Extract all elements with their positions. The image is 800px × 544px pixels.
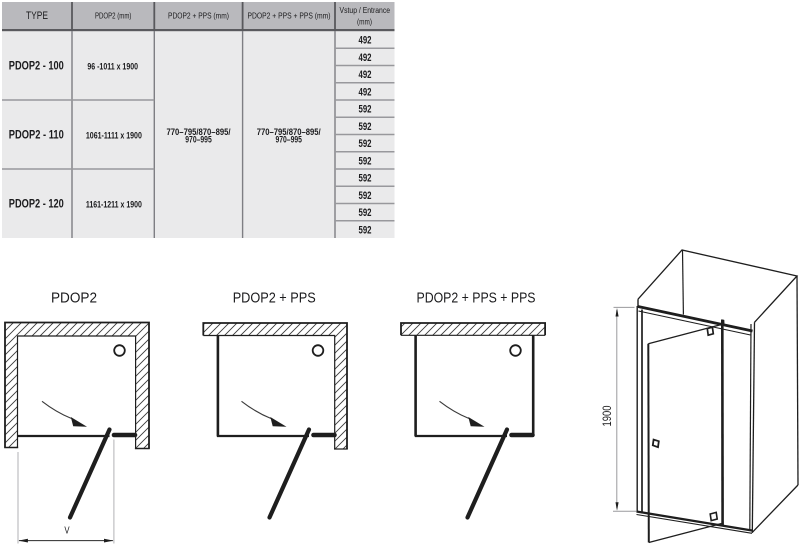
svg-text:PDOP2: PDOP2 — [51, 290, 97, 307]
svg-text:592: 592 — [359, 104, 372, 116]
svg-text:492: 492 — [359, 35, 372, 47]
svg-text:592: 592 — [359, 155, 372, 167]
svg-text:492: 492 — [359, 52, 372, 64]
svg-text:1900: 1900 — [602, 406, 614, 427]
svg-text:592: 592 — [359, 173, 372, 185]
svg-text:1061-1111 x 1900: 1061-1111 x 1900 — [86, 131, 142, 142]
svg-text:PDOP2 + PPS (mm): PDOP2 + PPS (mm) — [168, 10, 229, 20]
svg-text:492: 492 — [359, 86, 372, 98]
svg-text:PDOP2 (mm): PDOP2 (mm) — [95, 10, 132, 20]
svg-text:970–995: 970–995 — [185, 135, 212, 146]
svg-text:V: V — [64, 524, 69, 536]
svg-text:592: 592 — [359, 207, 372, 219]
svg-text:PDOP2 + PPS + PPS: PDOP2 + PPS + PPS — [417, 290, 536, 307]
svg-text:1161-1211 x 1900: 1161-1211 x 1900 — [86, 200, 142, 211]
svg-text:592: 592 — [359, 224, 372, 236]
svg-text:PDOP2 + PPS + PPS (mm): PDOP2 + PPS + PPS (mm) — [248, 10, 331, 20]
svg-text:970–995: 970–995 — [275, 135, 302, 146]
svg-text:PDOP2 - 110: PDOP2 - 110 — [9, 128, 64, 142]
svg-text:PDOP2 - 120: PDOP2 - 120 — [9, 197, 64, 211]
svg-text:492: 492 — [359, 69, 372, 81]
svg-text:96 -1011 x 1900: 96 -1011 x 1900 — [87, 61, 138, 72]
svg-text:PDOP2 + PPS: PDOP2 + PPS — [233, 290, 316, 307]
svg-text:TYPE: TYPE — [26, 10, 48, 22]
svg-text:PDOP2 - 100: PDOP2 - 100 — [9, 59, 64, 73]
svg-text:(mm): (mm) — [357, 18, 372, 27]
svg-text:592: 592 — [359, 190, 372, 202]
svg-text:592: 592 — [359, 138, 372, 150]
svg-text:Vstup / Entrance: Vstup / Entrance — [340, 6, 391, 15]
svg-text:592: 592 — [359, 121, 372, 133]
